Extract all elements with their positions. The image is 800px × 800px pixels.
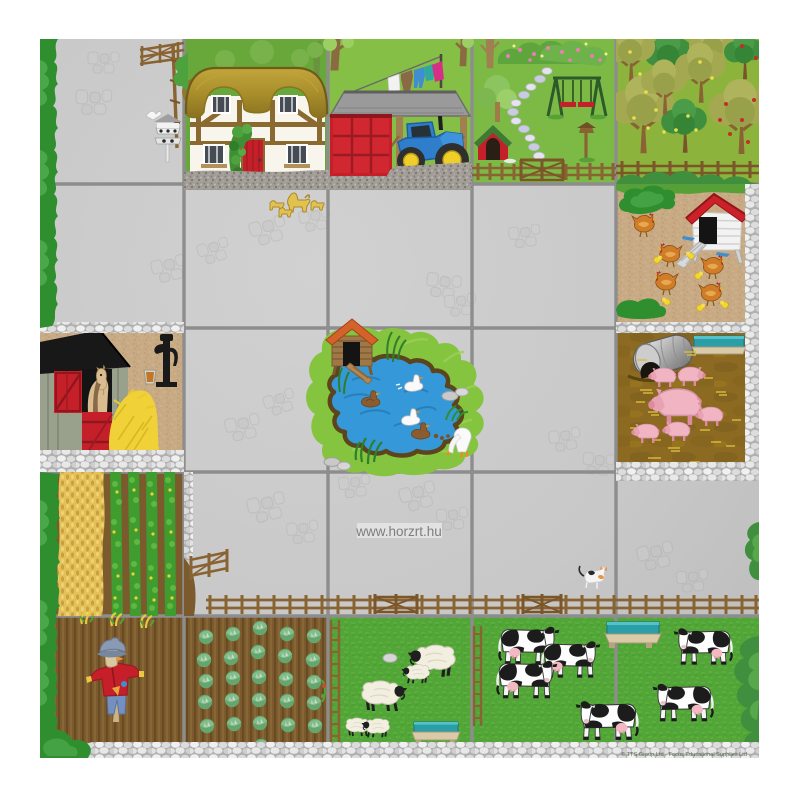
svg-text:© TTS Group Ltd · Focus Educat: © TTS Group Ltd · Focus Educational Supp… — [621, 751, 747, 758]
svg-text:www.horzrt.hu: www.horzrt.hu — [355, 524, 442, 539]
